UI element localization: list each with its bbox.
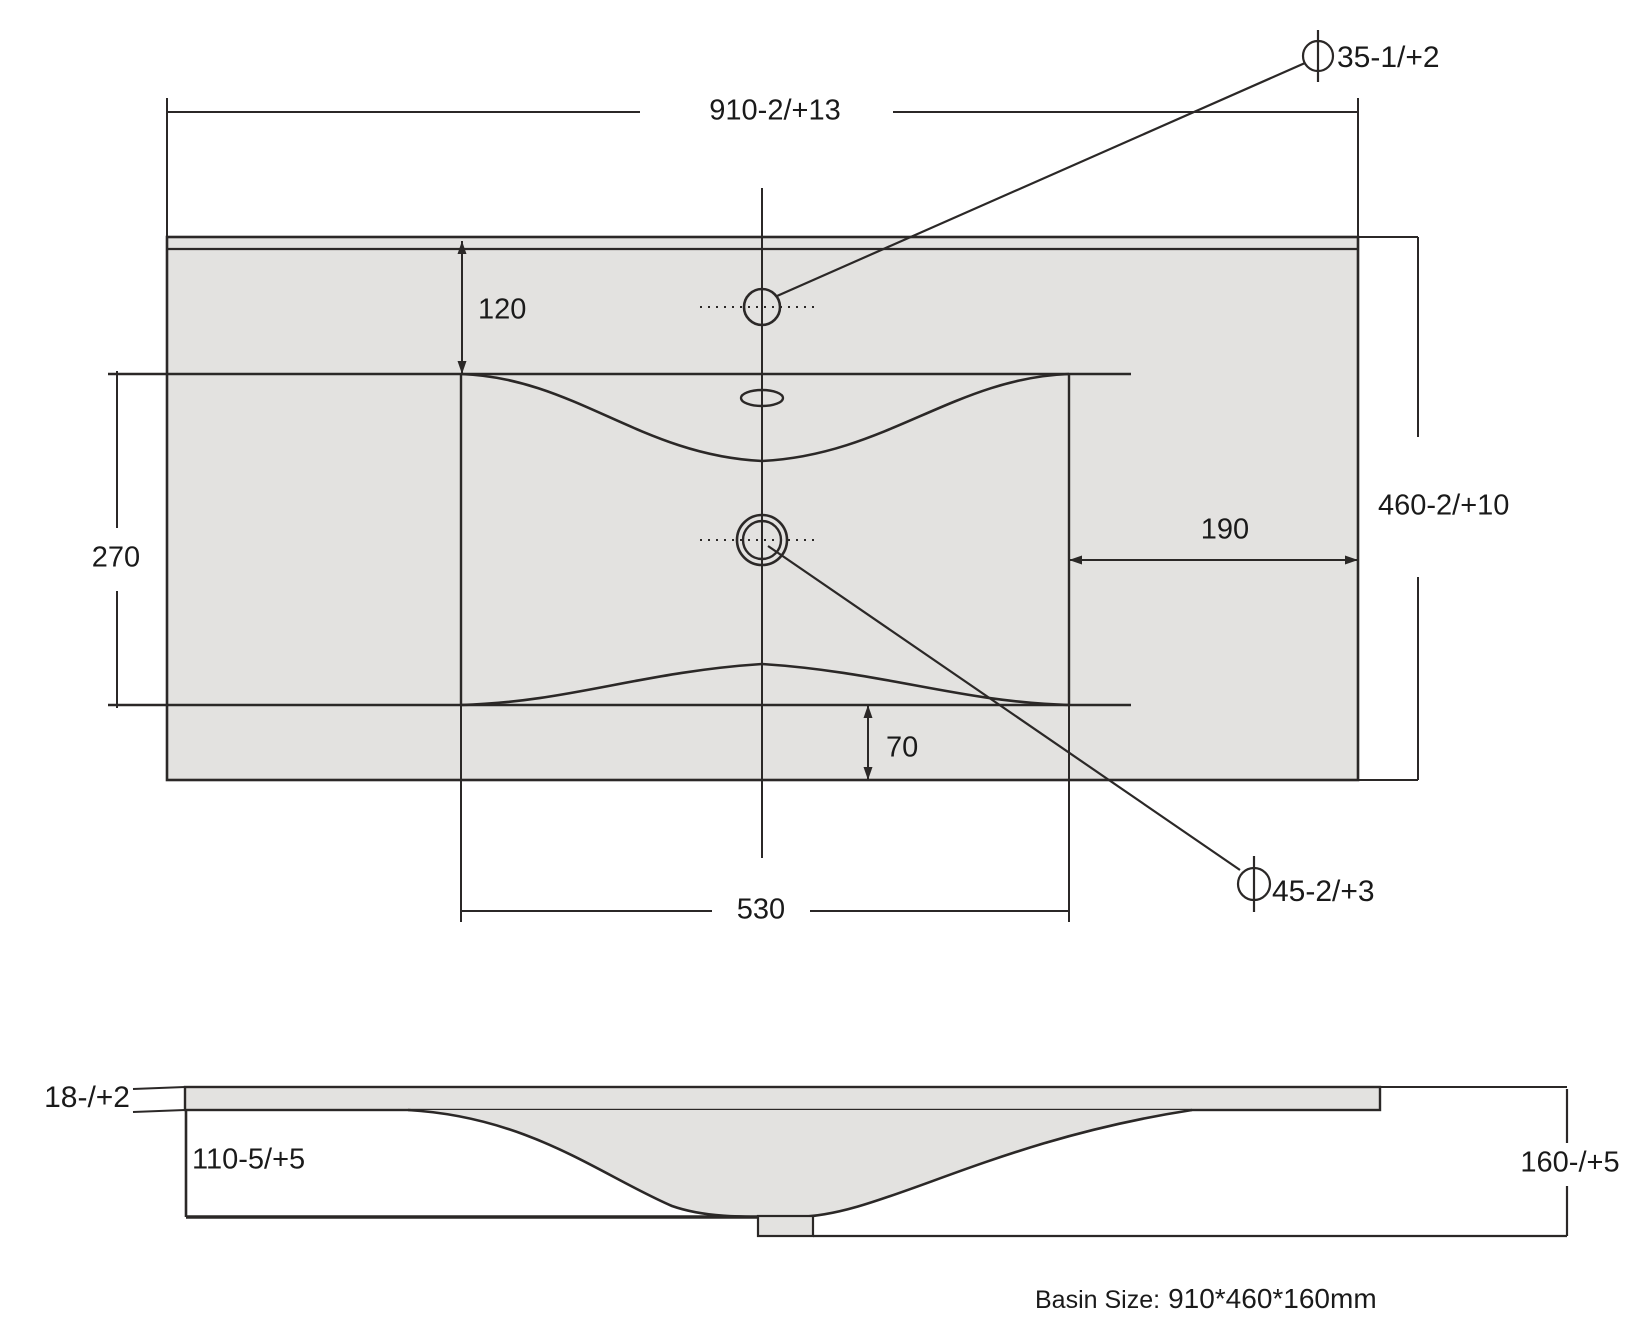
- diameter-symbol-icon: [1238, 856, 1270, 912]
- dim-120-label: 120: [478, 294, 526, 326]
- dim-160-label: 160-/+5: [1520, 1147, 1619, 1179]
- dim-18-leaders: [133, 1087, 185, 1112]
- drawing-canvas: 910-2/+13 460-2/+10 120 270 190 70 530 3…: [0, 0, 1647, 1318]
- top-view: [108, 30, 1418, 922]
- faucet-hole-dia-label: 35-1/+2: [1337, 41, 1440, 74]
- basin-size-label: Basin Size:: [1035, 1286, 1160, 1314]
- dim-910-label: 910-2/+13: [709, 95, 840, 127]
- slab-section: [185, 1087, 1380, 1110]
- dim-70-label: 70: [886, 732, 918, 764]
- diameter-symbol-icon: [1303, 30, 1333, 82]
- dim-270-label: 270: [92, 542, 140, 574]
- basin-size-note: Basin Size:910*460*160mm: [1035, 1283, 1377, 1314]
- dim-110-label: 110-5/+5: [192, 1144, 305, 1176]
- drain-stub: [758, 1216, 813, 1236]
- side-view: [133, 1087, 1567, 1236]
- bowl-section-fill: [408, 1110, 1192, 1217]
- basin-size-value: 910*460*160mm: [1168, 1283, 1377, 1314]
- dim-530-label: 530: [737, 894, 785, 926]
- dim-190-label: 190: [1201, 514, 1249, 546]
- dim-18-label: 18-/+2: [44, 1081, 130, 1114]
- basin-technical-drawing: 910-2/+13 460-2/+10 120 270 190 70 530 3…: [0, 0, 1647, 1318]
- dim-460-label: 460-2/+10: [1378, 490, 1509, 522]
- drain-hole-dia-label: 45-2/+3: [1272, 875, 1375, 908]
